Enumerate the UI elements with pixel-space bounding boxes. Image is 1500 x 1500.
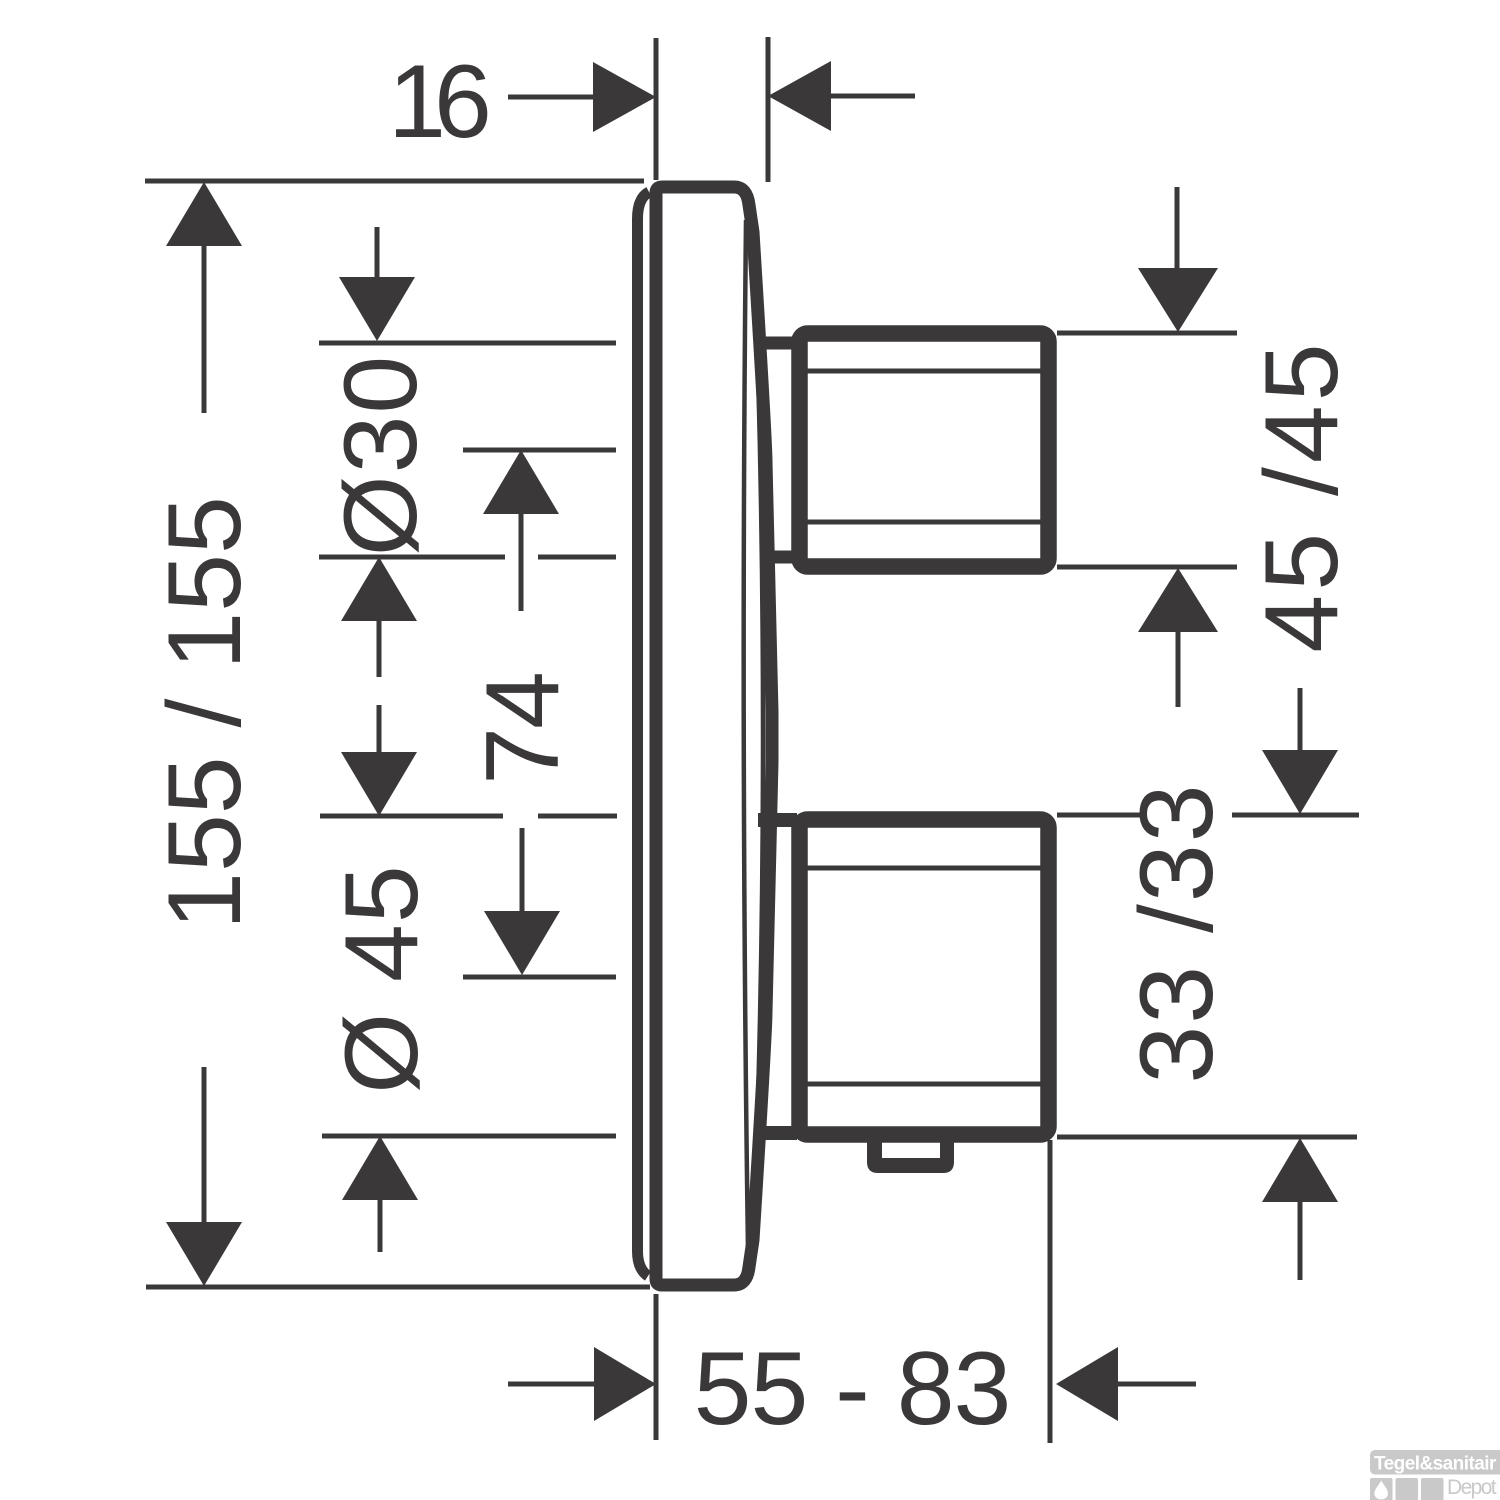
svg-text:Ø30: Ø30 [323, 354, 439, 557]
svg-text:33 /33: 33 /33 [1119, 782, 1235, 1083]
svg-text:45 /45: 45 /45 [1244, 339, 1360, 652]
svg-text:55 - 83: 55 - 83 [694, 1331, 1011, 1447]
svg-text:Depot: Depot [1447, 1476, 1497, 1499]
svg-text:Tegel&sanitair: Tegel&sanitair [1374, 1454, 1497, 1475]
svg-text:Ø 45: Ø 45 [324, 864, 440, 1093]
svg-text:16: 16 [388, 44, 488, 160]
svg-text:155 / 155: 155 / 155 [147, 496, 263, 930]
svg-text:74: 74 [465, 673, 581, 785]
